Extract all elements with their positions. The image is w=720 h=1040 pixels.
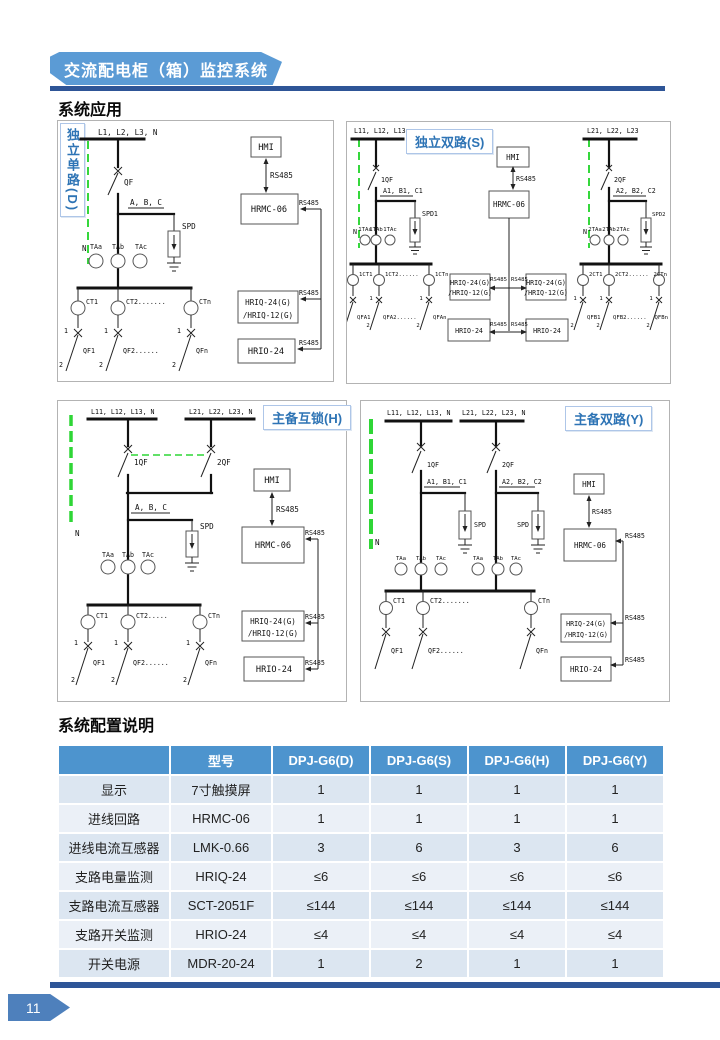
pole-2-label: 2 [99, 361, 103, 369]
config-table-header: DPJ-G6(D) [273, 746, 369, 774]
phase-label: A, B, C [135, 503, 167, 512]
diagram-independent-dual: 独立双路(S) L11, L12, L13 1QF A1, B1, C1 SPD… [346, 121, 671, 384]
config-value-cell: ≤6 [567, 863, 663, 890]
right-feeders: 2CT1 1 2 QFB1 2CT2...... 1 2 QFB2...... … [570, 264, 668, 330]
incoming-ct-group-left: TAa TAb TAc [395, 556, 447, 575]
rs485-label: RS485 [490, 322, 507, 328]
svg-text:1: 1 [369, 296, 372, 302]
bus-label: L21, L22, L23 [587, 127, 639, 135]
pole-1-label: 1 [104, 327, 108, 335]
right-circuit: L21, L22, L23 2QF A2, B2, C2 SPD2 N 2TAa… [581, 127, 665, 264]
rs485-label: RS485 [625, 532, 645, 540]
ct-label: 2CT2...... [615, 272, 649, 278]
hrmc-unit: HRMC-06 RS485 [242, 527, 325, 669]
rs485-label: RS485 [305, 613, 325, 621]
config-section-title: 系统配置说明 [58, 712, 154, 736]
svg-text:2: 2 [570, 323, 573, 329]
feeder-label: QF1 [83, 347, 95, 355]
hrio-unit: HRIO-24 RS485 [238, 339, 321, 363]
phase-label: A2, B2, C2 [616, 187, 656, 195]
phase-label-group: A, B, C [131, 503, 170, 513]
rs485-label: RS485 [625, 656, 645, 664]
phase-label: A1, B1, C1 [383, 187, 423, 195]
hrio-label: HRIO-24 [256, 665, 292, 675]
page-number: 11 [26, 1000, 41, 1016]
hriq-label-line2: /HRIQ-12(G) [448, 289, 492, 297]
hrio-label: HRIO-24 [455, 327, 483, 335]
feeder-branch-2: CT2....... 1 2 QF2...... [99, 288, 166, 371]
ct-label: CT2....... [126, 298, 166, 306]
hriq-unit: HRIQ-24(G) /HRIQ-12(G) RS485 [238, 289, 321, 323]
svg-text:2: 2 [366, 323, 369, 329]
rs485-label: RS485 [270, 171, 293, 180]
svg-text:2: 2 [596, 323, 599, 329]
rs485-label: RS485 [276, 505, 299, 514]
config-value-cell: 6 [371, 834, 467, 861]
feeder-branch-n: CTn QFn [520, 591, 550, 669]
config-value-cell: ≤4 [273, 921, 369, 948]
spd-label: SPD [517, 521, 529, 529]
config-model-cell: HRIO-24 [171, 921, 271, 948]
svg-text:2: 2 [183, 676, 187, 684]
rs485-label: RS485 [625, 614, 645, 622]
hmi-label: HMI [258, 143, 274, 153]
config-value-cell: ≤4 [567, 921, 663, 948]
ct-label: CT1 [393, 597, 405, 605]
config-value-cell: ≤4 [371, 921, 467, 948]
feeder-label: QF1 [391, 647, 403, 655]
hmi-label: HMI [506, 153, 520, 162]
svg-text:1: 1 [74, 639, 78, 647]
config-value-cell: 1 [273, 776, 369, 803]
page-number-badge: 11 [8, 994, 70, 1021]
config-value-cell: 3 [469, 834, 565, 861]
feeder-label: QF1 [93, 659, 105, 667]
feeder-branch-n: CTn 1 2 QFn [183, 605, 220, 685]
ta-label: TAb [416, 556, 427, 562]
config-row-label: 开关电源 [59, 950, 169, 977]
ta-label: TAa [473, 556, 483, 562]
ct-label: CT1 [86, 298, 98, 306]
feeder-label: QFBn [655, 315, 668, 321]
ta-label: TAb [122, 551, 134, 559]
ct-label: CTn [199, 298, 211, 306]
breaker-label: QF [124, 178, 134, 187]
config-model-cell: 7寸触摸屏 [171, 776, 271, 803]
ta-label: TAa [396, 556, 406, 562]
applications-section-title: 系统应用 [58, 96, 122, 120]
hriq-label-line2: /HRIQ-12(G) [248, 629, 298, 638]
feeder-label: QFn [536, 647, 548, 655]
config-table: 型号DPJ-G6(D)DPJ-G6(S)DPJ-G6(H)DPJ-G6(Y) 显… [57, 744, 665, 979]
config-value-cell: ≤144 [567, 892, 663, 919]
ct-label: 1CT2...... [385, 272, 419, 278]
ct-label: CTn [208, 612, 220, 620]
spd-branch: SPD [128, 520, 214, 571]
config-value-cell: ≤6 [273, 863, 369, 890]
pole-2-label: 2 [172, 361, 176, 369]
svg-text:1: 1 [649, 296, 652, 302]
rs485-label: RS485 [490, 277, 507, 283]
rs485-label: RS485 [511, 322, 528, 328]
hmi-label: HMI [582, 480, 596, 489]
interlocked-breakers: 1QF 2QF [118, 445, 231, 605]
svg-text:2: 2 [111, 676, 115, 684]
rs485-label: RS485 [516, 175, 536, 183]
hrio-label: HRIO-24 [533, 327, 561, 335]
config-table-header: 型号 [171, 746, 271, 774]
feeder-label: QFA1 [357, 315, 370, 321]
breaker-label: 1QF [427, 461, 439, 469]
ct-label: 2CTn [654, 272, 667, 278]
ct-label: CT1 [96, 612, 108, 620]
ct-label: CTn [538, 597, 550, 605]
config-value-cell: 1 [567, 805, 663, 832]
rs485-label: RS485 [511, 277, 528, 283]
hriq-label-line2: /HRIQ-12(G) [243, 311, 293, 320]
hriq-unit: HRIQ-24(G) /HRIQ-12(G) RS485 [561, 614, 645, 642]
ct-label: CT2....... [430, 597, 470, 605]
hriq-label-line2: /HRIQ-12(G) [524, 289, 568, 297]
breaker-label: 2QF [217, 458, 231, 467]
config-table-header: DPJ-G6(H) [469, 746, 565, 774]
hrio-label: HRIO-24 [248, 347, 284, 357]
rs485-label: RS485 [299, 289, 319, 297]
hrio-unit: HRIO-24 RS485 [561, 656, 645, 681]
phase-label: A, B, C [130, 198, 162, 207]
feeder-branch-1: CT1 1 2 QF1 [71, 605, 108, 685]
rs485-label: RS485 [592, 508, 612, 516]
hrmc-unit: HRMC-06 RS485 [564, 529, 645, 665]
top-rule [50, 86, 665, 91]
svg-text:2: 2 [71, 676, 75, 684]
neutral-label: N [353, 228, 357, 236]
feeder-branch-1: CT1 QF1 [375, 591, 405, 669]
config-row-label: 进线回路 [59, 805, 169, 832]
ta-label: 2TAc [616, 227, 629, 233]
incoming-ct-group-right: TAa TAb TAc [472, 556, 522, 575]
svg-text:1: 1 [599, 296, 602, 302]
diagram-y-svg: N L11, L12, L13, N L21, L22, L23, N 1QF … [361, 401, 669, 701]
svg-text:2: 2 [416, 323, 419, 329]
pole-2-label: 2 [59, 361, 63, 369]
hmi-unit: HMI RS485 [251, 137, 293, 192]
config-table-row: 支路电量监测HRIQ-24≤6≤6≤6≤6 [59, 863, 663, 890]
incoming-bus: L1, L2, L3, N [81, 128, 158, 167]
config-value-cell: 1 [567, 950, 663, 977]
config-value-cell: ≤144 [371, 892, 467, 919]
config-table-header: DPJ-G6(S) [371, 746, 467, 774]
config-row-label: 进线电流互感器 [59, 834, 169, 861]
feeder-label: QFn [205, 659, 217, 667]
neutral-label: N [82, 244, 87, 253]
hrio-unit: HRIO-24 RS485 [244, 657, 325, 681]
config-value-cell: ≤6 [469, 863, 565, 890]
left-feeders: 1CT1 QFA1 1CT2...... 1 2 QFA2...... 1CTn… [347, 264, 448, 330]
bus-label: L1, L2, L3, N [98, 128, 158, 137]
feeder-label: QFAn [433, 315, 446, 321]
hriq-label-line1: HRIQ-24(G) [566, 620, 606, 628]
feeder-branch-2: CT2....... QF2...... [412, 591, 470, 669]
diagram-d-svg: L1, L2, L3, N QF A, B, C SPD N TAa TAb T… [58, 121, 333, 381]
svg-text:1: 1 [573, 296, 576, 302]
hriq-label-line1: HRIQ-24(G) [526, 279, 566, 287]
config-value-cell: 1 [371, 805, 467, 832]
phase-label-group: A, B, C [128, 198, 164, 208]
ta-label: 2TAa [588, 227, 601, 233]
banner-title: 交流配电柜（箱）监控系统 [64, 57, 268, 81]
feeder-label: QF2...... [123, 347, 159, 355]
spd-branch: SPD [118, 214, 196, 271]
ta-label: 1TAc [383, 227, 396, 233]
rs485-label: RS485 [305, 659, 325, 667]
config-model-cell: MDR-20-24 [171, 950, 271, 977]
config-table-body: 显示7寸触摸屏1111进线回路HRMC-061111进线电流互感器LMK-0.6… [59, 776, 663, 977]
hrmc-label: HRMC-06 [574, 541, 606, 550]
bus-label: L11, L12, L13, N [91, 408, 155, 416]
feeder-branch-1: CT1 1 2 QF1 [59, 288, 98, 371]
neutral-label: N [75, 529, 80, 538]
config-value-cell: 6 [567, 834, 663, 861]
dual-incoming-buses: L11, L12, L13, N L21, L22, L23, N [386, 409, 526, 421]
config-value-cell: ≤4 [469, 921, 565, 948]
rs485-label: RS485 [299, 199, 319, 207]
hmi-unit: HMI RS485 [254, 469, 299, 525]
banner-ribbon: 交流配电柜（箱）监控系统 [50, 52, 282, 85]
config-model-cell: LMK-0.66 [171, 834, 271, 861]
feeder-label: QF2...... [428, 647, 464, 655]
config-row-label: 支路电流互感器 [59, 892, 169, 919]
breaker-label: 2QF [502, 461, 514, 469]
incoming-ct-group: N TAa TAb TAc [82, 243, 147, 268]
config-table-row: 显示7寸触摸屏1111 [59, 776, 663, 803]
ta-label: TAb [493, 556, 504, 562]
spd-label: SPD [182, 222, 196, 231]
feeder-label: QFA2...... [383, 315, 417, 321]
incoming-ct-group: TAa TAb TAc [101, 551, 155, 574]
diagram-s-svg: L11, L12, L13 1QF A1, B1, C1 SPD1 N 1TAa… [347, 122, 670, 383]
pole-1-label: 1 [64, 327, 68, 335]
config-model-cell: HRMC-06 [171, 805, 271, 832]
breaker-label: 1QF [134, 458, 148, 467]
config-value-cell: ≤144 [469, 892, 565, 919]
config-value-cell: 1 [567, 776, 663, 803]
config-table-header: DPJ-G6(Y) [567, 746, 663, 774]
config-value-cell: ≤144 [273, 892, 369, 919]
feeder-branch-n: CTn 1 2 QFn [172, 288, 211, 371]
svg-text:1: 1 [186, 639, 190, 647]
hrmc-label: HRMC-06 [251, 205, 287, 215]
spd-label: SPD [200, 522, 214, 531]
main-breaker-symbol: QF [108, 167, 134, 288]
hriq-label-line2: /HRIQ-12(G) [564, 631, 608, 639]
hmi-unit: HMI RS485 [574, 474, 612, 527]
hriq-label-line1: HRIQ-24(G) [250, 617, 296, 626]
svg-text:1: 1 [419, 296, 422, 302]
config-row-label: 支路电量监测 [59, 863, 169, 890]
bus-label: L11, L12, L13 [354, 127, 406, 135]
hriq-unit: HRIQ-24(G) /HRIQ-12(G) RS485 [242, 611, 325, 641]
config-row-label: 显示 [59, 776, 169, 803]
config-value-cell: 1 [469, 950, 565, 977]
ta-label: 2TAb [602, 227, 616, 233]
ta-label: 1TAb [369, 227, 383, 233]
config-table-corner [59, 746, 169, 774]
config-model-cell: SCT-2051F [171, 892, 271, 919]
feeder-label: QFB1 [587, 315, 600, 321]
phase-labels: A1, B1, C1 A2, B2, C2 [424, 478, 542, 487]
center-monitoring-column: HMI RS485 HRMC-06 HRIQ-24(G) /HRIQ-12(G)… [448, 147, 568, 341]
svg-text:1: 1 [114, 639, 118, 647]
hrmc-label: HRMC-06 [255, 541, 291, 551]
bus-label: L21, L22, L23, N [189, 408, 253, 416]
config-model-cell: HRIQ-24 [171, 863, 271, 890]
ta-label: TAc [436, 556, 446, 562]
config-value-cell: 2 [371, 950, 467, 977]
phase-label: A2, B2, C2 [502, 478, 542, 486]
rs485-label: RS485 [299, 339, 319, 347]
spd-label: SPD1 [422, 210, 438, 218]
feeder-label: QFB2...... [613, 315, 647, 321]
hriq-label-line1: HRIQ-24(G) [245, 298, 291, 307]
left-circuit: L11, L12, L13 1QF A1, B1, C1 SPD1 N 1TAa… [351, 127, 438, 264]
neutral-label: N [583, 228, 587, 236]
phase-label: A1, B1, C1 [427, 478, 467, 486]
diagram-h-svg: N L11, L12, L13, N L21, L22, L23, N 1QF … [58, 401, 346, 701]
config-table-row: 支路开关监测HRIO-24≤4≤4≤4≤4 [59, 921, 663, 948]
hriq-label-line1: HRIQ-24(G) [450, 279, 490, 287]
config-table-row: 进线电流互感器LMK-0.663636 [59, 834, 663, 861]
ct-label: 1CTn [435, 272, 448, 278]
ta-label: TAc [135, 243, 147, 251]
config-value-cell: 1 [469, 805, 565, 832]
feeder-label: QFn [196, 347, 208, 355]
spd-branch-left: SPD [421, 493, 486, 553]
config-table-head-row: 型号DPJ-G6(D)DPJ-G6(S)DPJ-G6(H)DPJ-G6(Y) [59, 746, 663, 774]
ta-label: TAb [112, 243, 124, 251]
hmi-label: HMI [264, 476, 280, 486]
ct-label: CT2..... [136, 612, 168, 620]
config-value-cell: 1 [273, 805, 369, 832]
config-table-row: 开关电源MDR-20-241211 [59, 950, 663, 977]
spd-branch-right: SPD [496, 493, 545, 553]
ta-label: TAc [511, 556, 521, 562]
breaker-label: 2QF [614, 176, 626, 184]
config-value-cell: 1 [469, 776, 565, 803]
ct-label: 2CT1 [589, 272, 602, 278]
config-value-cell: ≤6 [371, 863, 467, 890]
config-value-cell: 1 [273, 950, 369, 977]
config-value-cell: 3 [273, 834, 369, 861]
bottom-rule [50, 982, 720, 988]
ct-label: 1CT1 [359, 272, 372, 278]
feeder-branch-2: CT2..... 1 2 QF2...... [111, 605, 169, 685]
svg-text:2: 2 [646, 323, 649, 329]
ta-label: TAa [90, 243, 102, 251]
diagram-main-standby-dual: 主备双路(Y) N L11, L12, L13, N L21, L22, L23… [360, 400, 670, 702]
dual-incoming-buses: L11, L12, L13, N L21, L22, L23, N [88, 408, 254, 446]
hrmc-unit: HRMC-06 RS485 [241, 194, 321, 349]
feeder-label: QF2...... [133, 659, 169, 667]
spd-label: SPD [474, 521, 486, 529]
config-table-row: 支路电流互感器SCT-2051F≤144≤144≤144≤144 [59, 892, 663, 919]
diagram-main-standby-interlock: 主备互锁(H) N L11, L12, L13, N L21, L22, L23… [57, 400, 347, 702]
bus-label: L21, L22, L23, N [462, 409, 526, 417]
ta-label: TAc [142, 551, 154, 559]
config-value-cell: 1 [371, 776, 467, 803]
pole-1-label: 1 [177, 327, 181, 335]
ta-label: TAa [102, 551, 114, 559]
config-row-label: 支路开关监测 [59, 921, 169, 948]
diagram-independent-single: 独立单路(D) L1, L2, L3, N QF A, B, C SPD [57, 120, 334, 382]
hrmc-label: HRMC-06 [493, 200, 525, 209]
rs485-label: RS485 [305, 529, 325, 537]
bus-label: L11, L12, L13, N [387, 409, 451, 417]
config-table-row: 进线回路HRMC-061111 [59, 805, 663, 832]
breaker-label: 1QF [381, 176, 393, 184]
hrio-label: HRIO-24 [570, 665, 602, 674]
spd-label: SPD2 [652, 212, 665, 218]
neutral-label: N [375, 538, 380, 547]
